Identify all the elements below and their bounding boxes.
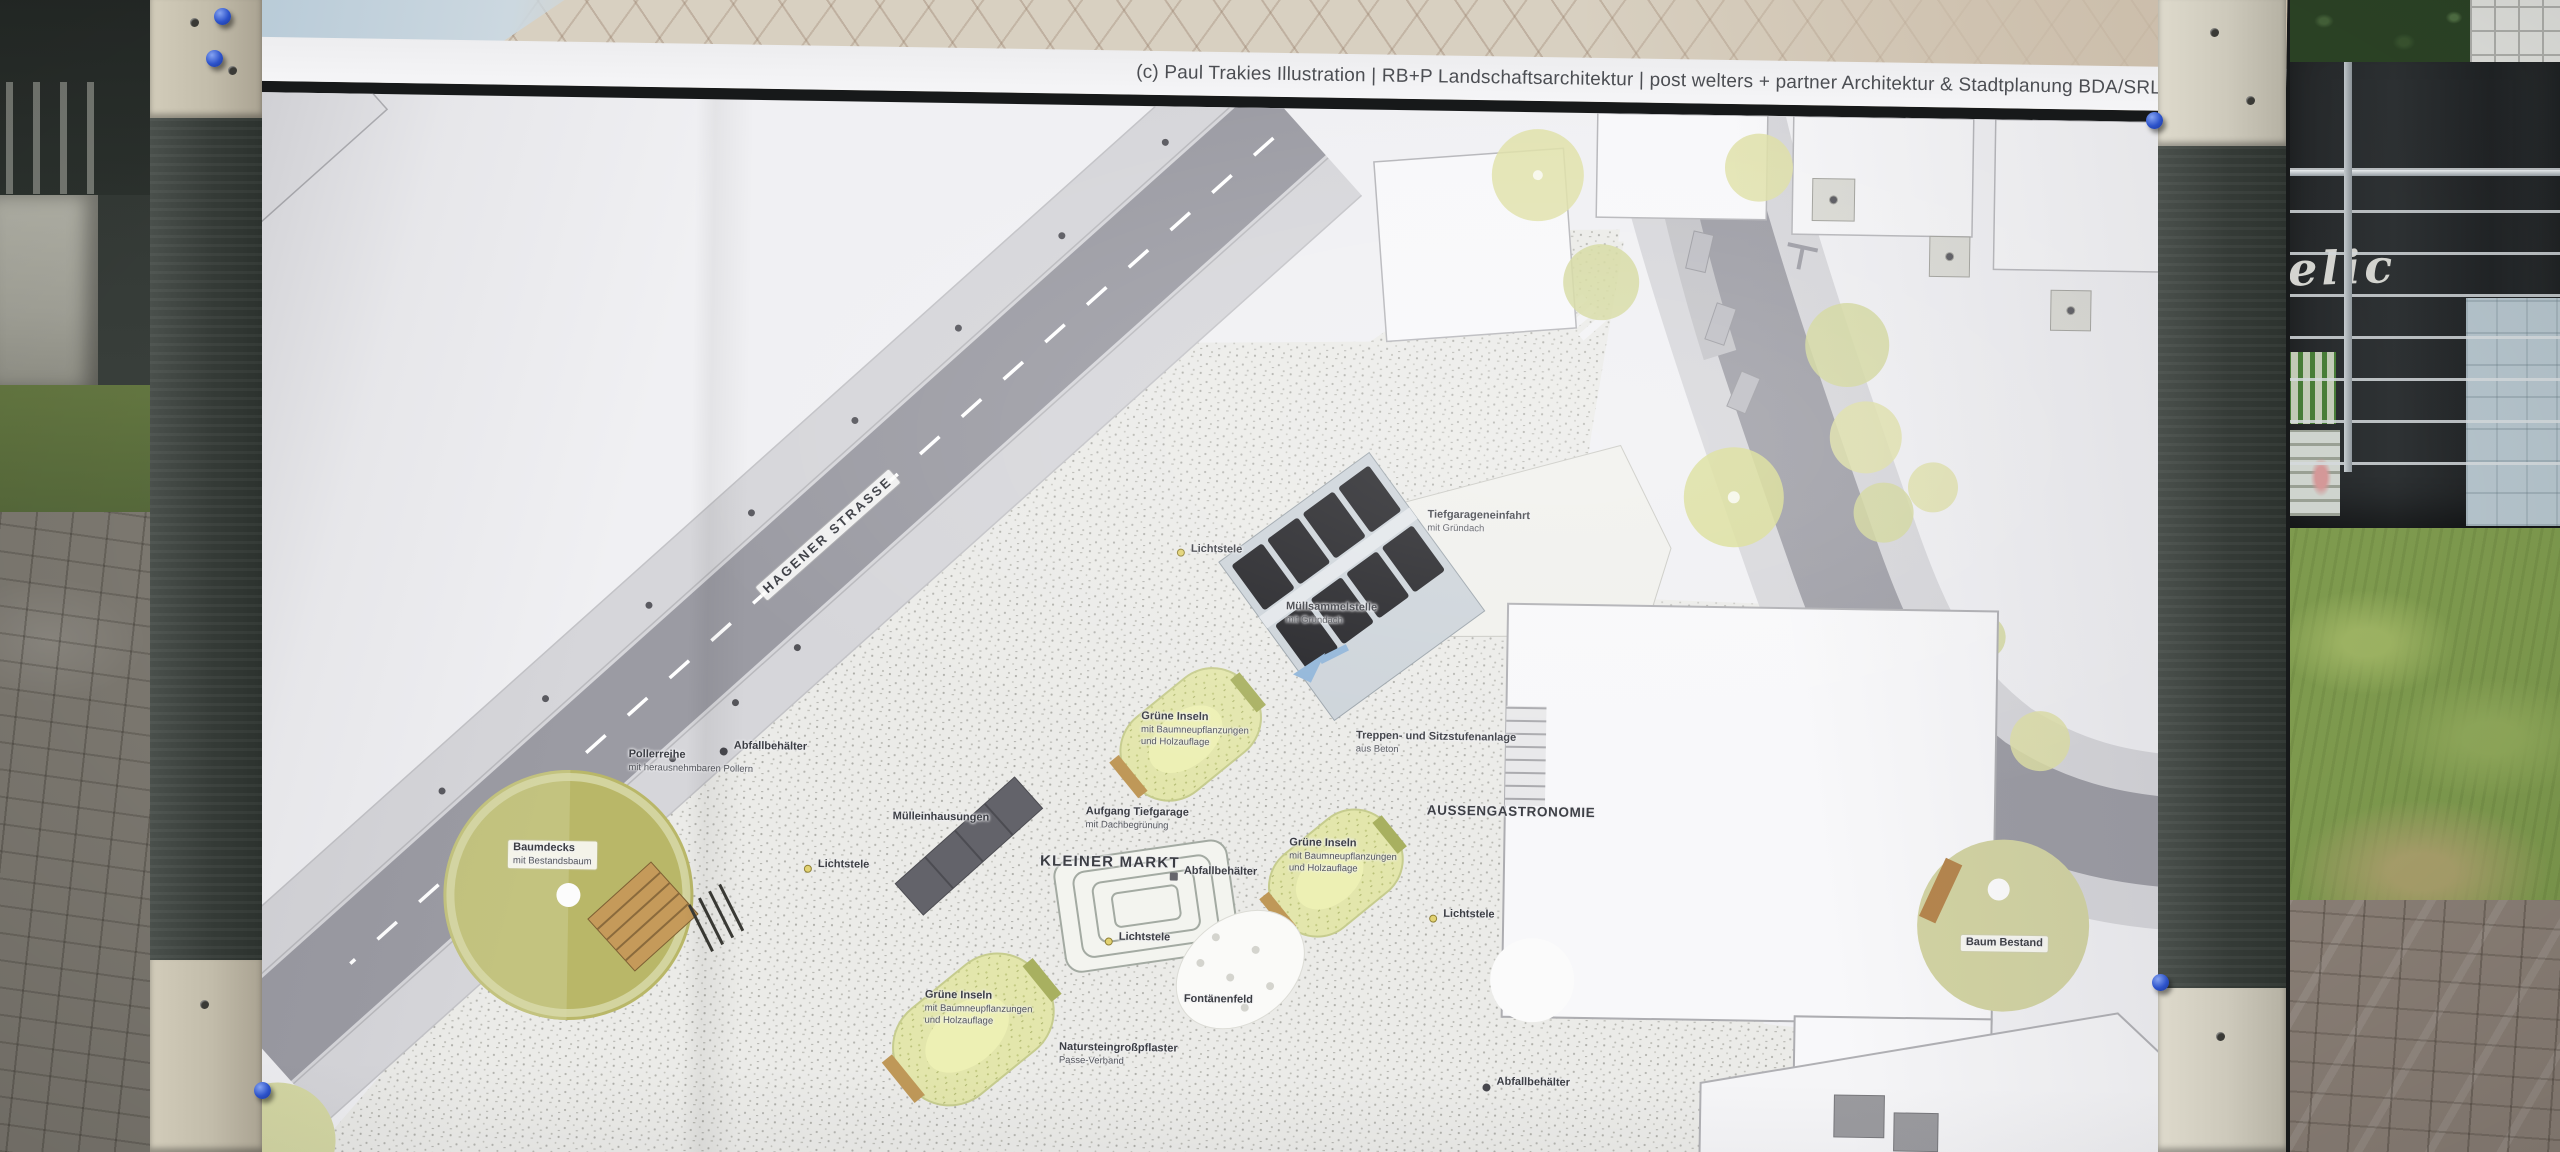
label-title: Müllsammelstelle xyxy=(1286,600,1377,613)
post-bracket-bottom-right xyxy=(2158,988,2286,1152)
post-bracket-top-right xyxy=(2158,0,2286,146)
push-pin xyxy=(2146,112,2163,129)
label-sub: mit Bestandsbaum xyxy=(513,855,592,868)
abfallbehaelter-marker xyxy=(1170,872,1178,880)
label-sub: mit Gründach xyxy=(1286,614,1377,627)
label-title: Baum Bestand xyxy=(1966,936,2043,949)
label-baumdecks: Baumdecks mit Bestandsbaum xyxy=(508,840,597,869)
label-title: Mülleinhausungen xyxy=(893,810,990,824)
lichtstele-marker xyxy=(1177,549,1185,557)
cobblestones-right xyxy=(2284,900,2560,1152)
label-fontaenenfeld: Fontänenfeld xyxy=(1184,993,1253,1008)
site-plan-sheet: HAGENER STRASSE Lichtstele Tiefgaragenei… xyxy=(237,92,2178,1152)
board-post-right xyxy=(2158,0,2286,1152)
label-gruene-inseln-middle: Grüne Inseln mit Baumneupflanzungen und … xyxy=(1289,836,1397,875)
label-sub: und Holzauflage xyxy=(1141,736,1249,750)
board-post-left xyxy=(150,0,262,1152)
push-pin xyxy=(206,50,223,67)
label-title: Lichtstele xyxy=(1443,908,1495,921)
label-title: Baumdecks xyxy=(513,841,575,854)
label-muelleinhausungen: Mülleinhausungen xyxy=(893,810,990,825)
label-title: Lichtstele xyxy=(1191,543,1243,556)
label-title: Abfallbehälter xyxy=(1497,1076,1571,1089)
grass-right xyxy=(2284,528,2560,910)
label-sub: mit Dachbegrünung xyxy=(1085,819,1188,832)
label-aufgang-tiefgarage: Aufgang Tiefgarage mit Dachbegrünung xyxy=(1085,805,1188,832)
label-abfallbehaelter-center: Abfallbehälter xyxy=(1184,865,1258,880)
lichtstele-marker xyxy=(1429,915,1437,923)
label-tiefgarageneinfahrt: Tiefgarageneinfahrt mit Gründach xyxy=(1427,508,1530,535)
label-treppen: Treppen- und Sitzstufenanlage aus Beton xyxy=(1356,729,1517,757)
label-aussengastronomie: AUSSENGASTRONOMIE xyxy=(1427,803,1596,823)
handrail xyxy=(2284,170,2560,176)
label-sub: Passe-Verband xyxy=(1059,1055,1178,1069)
label-title: Grüne Inseln xyxy=(1141,710,1208,723)
label-pollerreihe: Pollerreihe mit herausnehmbaren Pollern xyxy=(628,748,753,776)
post-bracket-bottom-left xyxy=(150,960,262,1152)
lichtstele-marker xyxy=(1105,937,1113,945)
label-sub: und Holzauflage xyxy=(1289,862,1397,876)
label-sub: aus Beton xyxy=(1356,743,1516,757)
label-title: Aufgang Tiefgarage xyxy=(1086,805,1189,819)
wire-fence-rails xyxy=(2284,168,2560,474)
label-sub: und Holzauflage xyxy=(924,1014,1032,1028)
label-abfallbehaelter-south: Abfallbehälter xyxy=(1496,1076,1570,1091)
label-title: Pollerreihe xyxy=(629,748,686,761)
label-gruene-inseln-south: Grüne Inseln mit Baumneupflanzungen und … xyxy=(924,989,1032,1028)
label-lichtstele-north: Lichtstele xyxy=(1191,543,1243,558)
label-title: AUSSENGASTRONOMIE xyxy=(1427,803,1596,821)
site-plan-drawing: HAGENER STRASSE Lichtstele Tiefgaragenei… xyxy=(237,92,2178,1152)
push-pin xyxy=(214,8,231,25)
cobblestones-left xyxy=(0,512,162,1152)
push-pin xyxy=(254,1082,271,1099)
label-naturstein: Natursteingroßpflaster Passe-Verband xyxy=(1059,1041,1178,1068)
tree-foliage xyxy=(2284,0,2484,70)
label-title: Abfallbehälter xyxy=(1184,865,1258,878)
label-title: Lichtstele xyxy=(818,858,870,871)
fence-left xyxy=(6,82,98,194)
abfallbehaelter-marker xyxy=(1482,1083,1490,1091)
label-title: Lichtstele xyxy=(1119,931,1171,944)
label-kleiner-markt: KLEINER MARKT xyxy=(1040,852,1180,873)
label-title: Grüne Inseln xyxy=(1289,836,1356,849)
push-pin xyxy=(2152,974,2169,991)
fence-post xyxy=(2344,62,2352,472)
label-title: Grüne Inseln xyxy=(925,989,992,1002)
photo-of-site-plan-board: elic (c) Paul Trakies Illustration | RB+… xyxy=(0,0,2560,1152)
label-lichtstele-center: Lichtstele xyxy=(1119,931,1171,946)
label-sub: mit Gründach xyxy=(1427,522,1530,535)
lichtstele-marker xyxy=(804,865,812,873)
label-title: Fontänenfeld xyxy=(1184,993,1253,1006)
label-muellsammelstelle: Müllsammelstelle mit Gründach xyxy=(1286,600,1377,627)
label-lichtstele-west: Lichtstele xyxy=(818,858,870,873)
concrete-block xyxy=(0,195,100,390)
label-title: Natursteingroßpflaster xyxy=(1059,1041,1178,1055)
post-body-right xyxy=(2158,146,2286,988)
label-sub: mit herausnehmbaren Pollern xyxy=(628,762,753,776)
label-gruene-inseln-north: Grüne Inseln mit Baumneupflanzungen und … xyxy=(1141,710,1249,749)
label-title: Treppen- und Sitzstufenanlage xyxy=(1356,729,1516,744)
plan-title: KLEINER MARKT xyxy=(1040,852,1180,871)
post-body-left xyxy=(150,118,262,960)
label-baum-bestand: Baum Bestand xyxy=(1961,935,2048,952)
label-lichtstele-east: Lichtstele xyxy=(1443,908,1495,923)
grass-left xyxy=(0,385,162,520)
label-title: Tiefgarageneinfahrt xyxy=(1427,508,1530,522)
